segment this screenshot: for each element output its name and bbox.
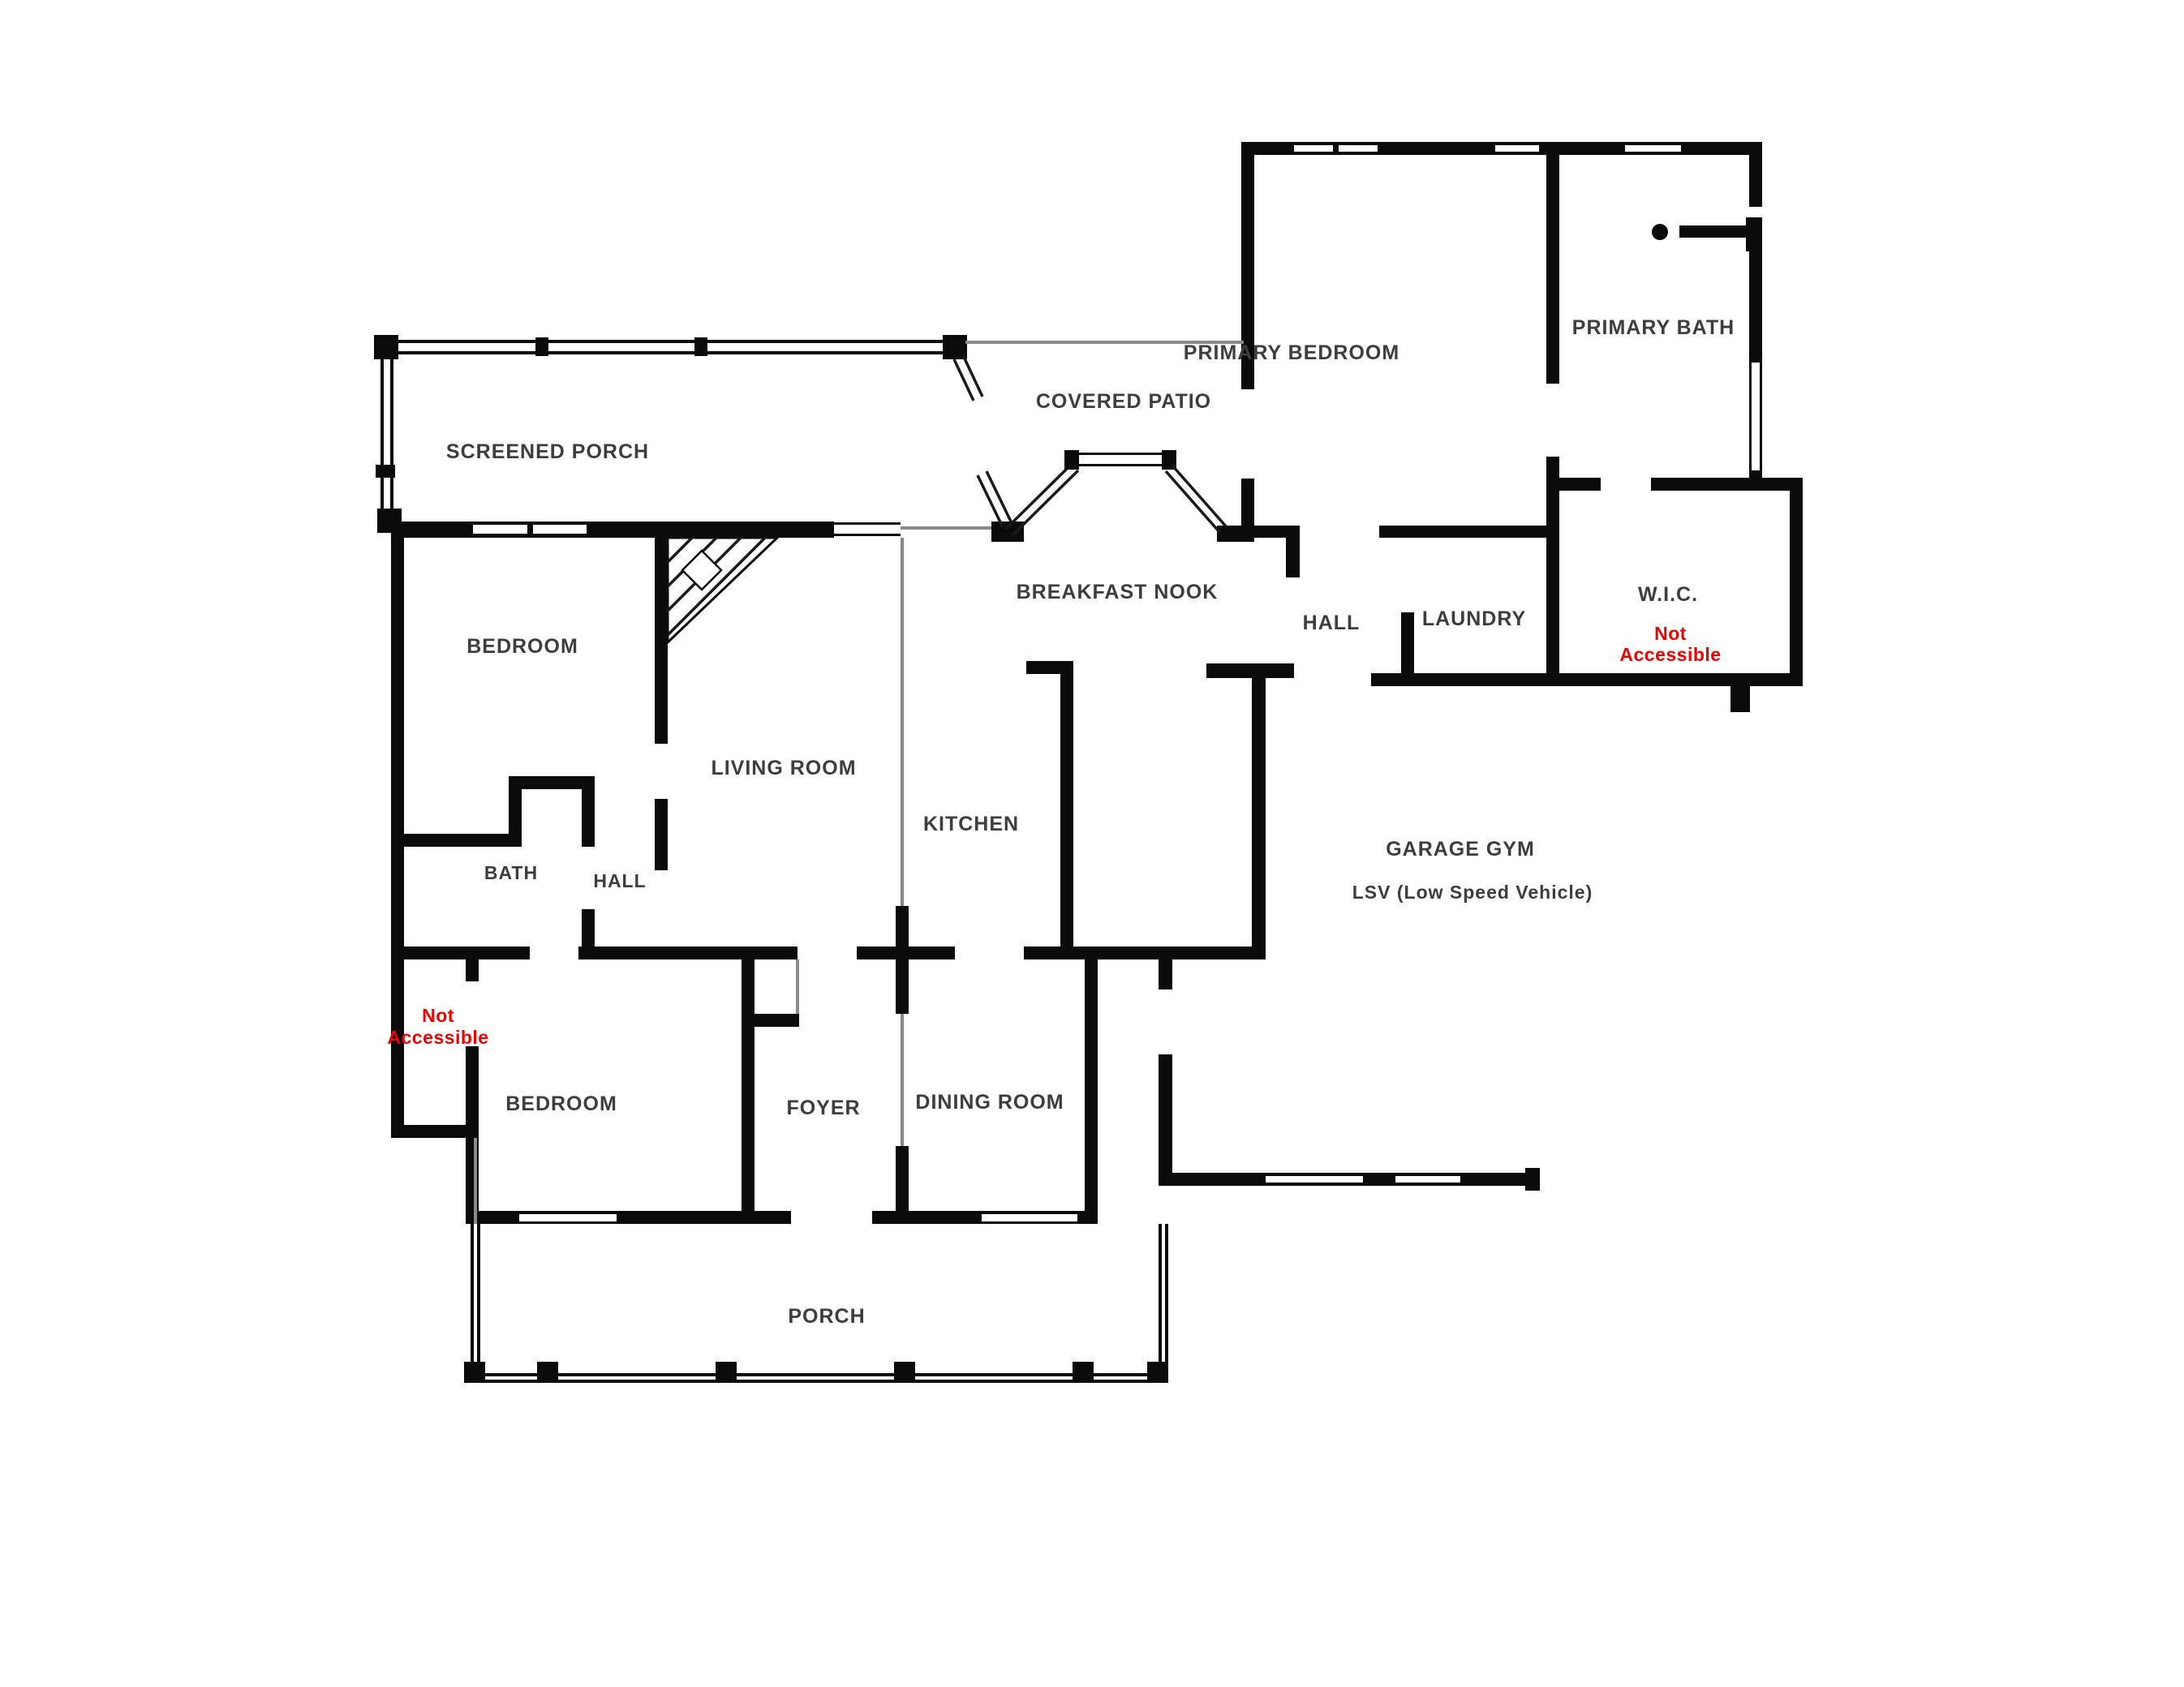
door-leaf [1679, 225, 1752, 238]
dining-cased-opening [901, 1014, 904, 1146]
primary-bath-window-east [1749, 363, 1762, 470]
patio-door-line [901, 526, 991, 530]
room-label-breakfast-nook: BREAKFAST NOOK [1017, 581, 1219, 603]
room-label-bedroom-left: BEDROOM [466, 635, 578, 658]
bedroom-bottom-window [519, 1212, 617, 1224]
room-label-covered-patio: COVERED PATIO [1036, 390, 1211, 413]
wic-not-accessible-line2: Accessible [1619, 644, 1721, 665]
bay-window [1006, 450, 1227, 535]
garage-window-2 [1395, 1174, 1460, 1185]
porch-rails [464, 1224, 1168, 1383]
room-label-bedroom-bottom: BEDROOM [505, 1092, 617, 1115]
wic-not-accessible-line1: Not [1654, 623, 1687, 644]
room-label-laundry: LAUNDRY [1422, 607, 1526, 630]
room-label-hall-upper: HALL [1303, 612, 1361, 634]
primary-bedroom-window-2 [1495, 143, 1539, 154]
room-label-porch: PORCH [788, 1305, 865, 1328]
room-label-primary-bath: PRIMARY BATH [1572, 316, 1735, 339]
floor-plan-svg: SCREENED PORCH COVERED PATIO PRIMARY BED… [0, 0, 2184, 1687]
bedroom-left-window [473, 522, 587, 536]
room-label-bath: BATH [484, 862, 538, 883]
room-label-screened-porch: SCREENED PORCH [446, 440, 649, 463]
primary-bedroom-window [1294, 143, 1378, 154]
living-kitchen-divider [901, 538, 904, 906]
front-door-opening [791, 1208, 872, 1227]
garage-window-1 [1266, 1174, 1363, 1185]
room-label-garage-gym: GARAGE GYM [1386, 838, 1535, 861]
dining-room-window [982, 1212, 1077, 1224]
walls [391, 142, 1803, 1224]
primary-bath-window-top [1625, 143, 1681, 154]
room-label-wic: W.I.C. [1638, 583, 1698, 606]
foyer-closet-opening [796, 959, 799, 1014]
primary-bath-door [1652, 224, 1752, 240]
room-label-hall-lower: HALL [593, 870, 646, 891]
floor-plan-page: SCREENED PORCH COVERED PATIO PRIMARY BED… [0, 0, 2184, 1687]
fireplace [668, 538, 777, 642]
porch-side-connector [474, 1138, 477, 1224]
left-not-accessible-line1: Not [422, 1005, 454, 1026]
living-room-window [834, 522, 901, 536]
room-label-primary-bedroom: PRIMARY BEDROOM [1184, 341, 1399, 364]
room-label-garage-gym-sub: LSV (Low Speed Vehicle) [1352, 882, 1593, 903]
room-label-living-room: LIVING ROOM [711, 757, 856, 779]
screened-porch-walls [374, 335, 1012, 533]
room-label-kitchen: KITCHEN [923, 813, 1019, 835]
room-label-foyer: FOYER [786, 1097, 860, 1119]
room-label-dining-room: DINING ROOM [915, 1091, 1064, 1114]
door-knob-dot [1652, 224, 1668, 240]
left-not-accessible-line2: Accessible [387, 1027, 488, 1048]
